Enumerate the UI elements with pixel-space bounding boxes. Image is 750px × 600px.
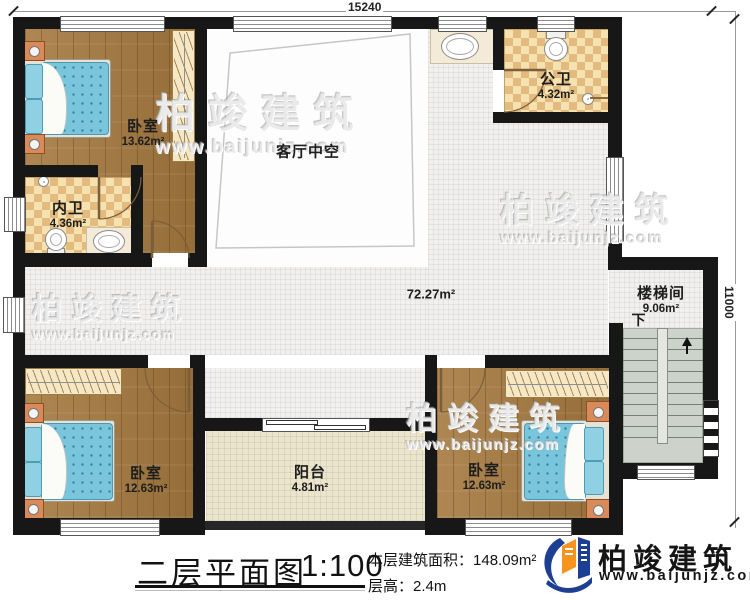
room-name: 客厅中空 <box>276 145 340 162</box>
room-name: 楼梯间 <box>637 286 685 303</box>
room-name: 卧室 <box>463 463 506 480</box>
room-name: 阳台 <box>292 465 328 482</box>
room-area: 4.32m² <box>538 89 574 102</box>
floor-area-text: 本层建筑面积：148.09m² <box>368 549 536 570</box>
floor-area-label: 本层建筑面积： <box>368 552 473 569</box>
dimension-line-right <box>735 12 736 528</box>
floor-height-text: 层高：2.4m <box>368 575 446 596</box>
room-label-inner-bath: 内卫 4.36m² <box>50 201 86 231</box>
room-label-hallway: 72.27m² <box>407 288 455 303</box>
room-label-living-void: 客厅中空 <box>276 145 340 162</box>
floor-height-value: 2.4m <box>413 578 446 595</box>
room-name: 卧室 <box>125 466 168 483</box>
room-label-bedroom-tl: 卧室 13.62m² <box>122 119 165 149</box>
room-area: 13.62m² <box>122 136 165 149</box>
room-area: 12.63m² <box>463 480 506 493</box>
stair-down-label: 下 <box>632 313 647 329</box>
room-label-public-bath: 公卫 4.32m² <box>538 72 574 102</box>
direction-text: 下 <box>632 313 647 329</box>
floor-area-value: 148.09m² <box>473 552 536 569</box>
floor-plan-page: 柏竣建筑 www.baijunjz.com 柏竣建筑 www.baijunjz.… <box>0 0 750 600</box>
room-area: 72.27m² <box>407 288 455 303</box>
room-name: 内卫 <box>50 201 86 218</box>
room-label-bedroom-br: 卧室 12.63m² <box>463 463 506 493</box>
company-website: www.baijunjz.com <box>599 568 750 584</box>
room-area: 4.36m² <box>50 218 86 231</box>
floor-height-label: 层高： <box>368 578 413 595</box>
room-label-bedroom-bl: 卧室 12.63m² <box>125 466 168 496</box>
living-void-outline <box>216 34 414 248</box>
dimension-top-value: 15240 <box>346 0 383 14</box>
room-name: 卧室 <box>122 119 165 136</box>
room-label-balcony: 阳台 4.81m² <box>292 465 328 495</box>
title-underline <box>135 585 365 588</box>
company-logo-icon <box>536 530 594 594</box>
room-area: 4.81m² <box>292 482 328 495</box>
room-name: 公卫 <box>538 72 574 89</box>
title-underline-light <box>135 590 365 591</box>
room-area: 12.63m² <box>125 483 168 496</box>
dimension-right-value: 11000 <box>722 284 736 321</box>
